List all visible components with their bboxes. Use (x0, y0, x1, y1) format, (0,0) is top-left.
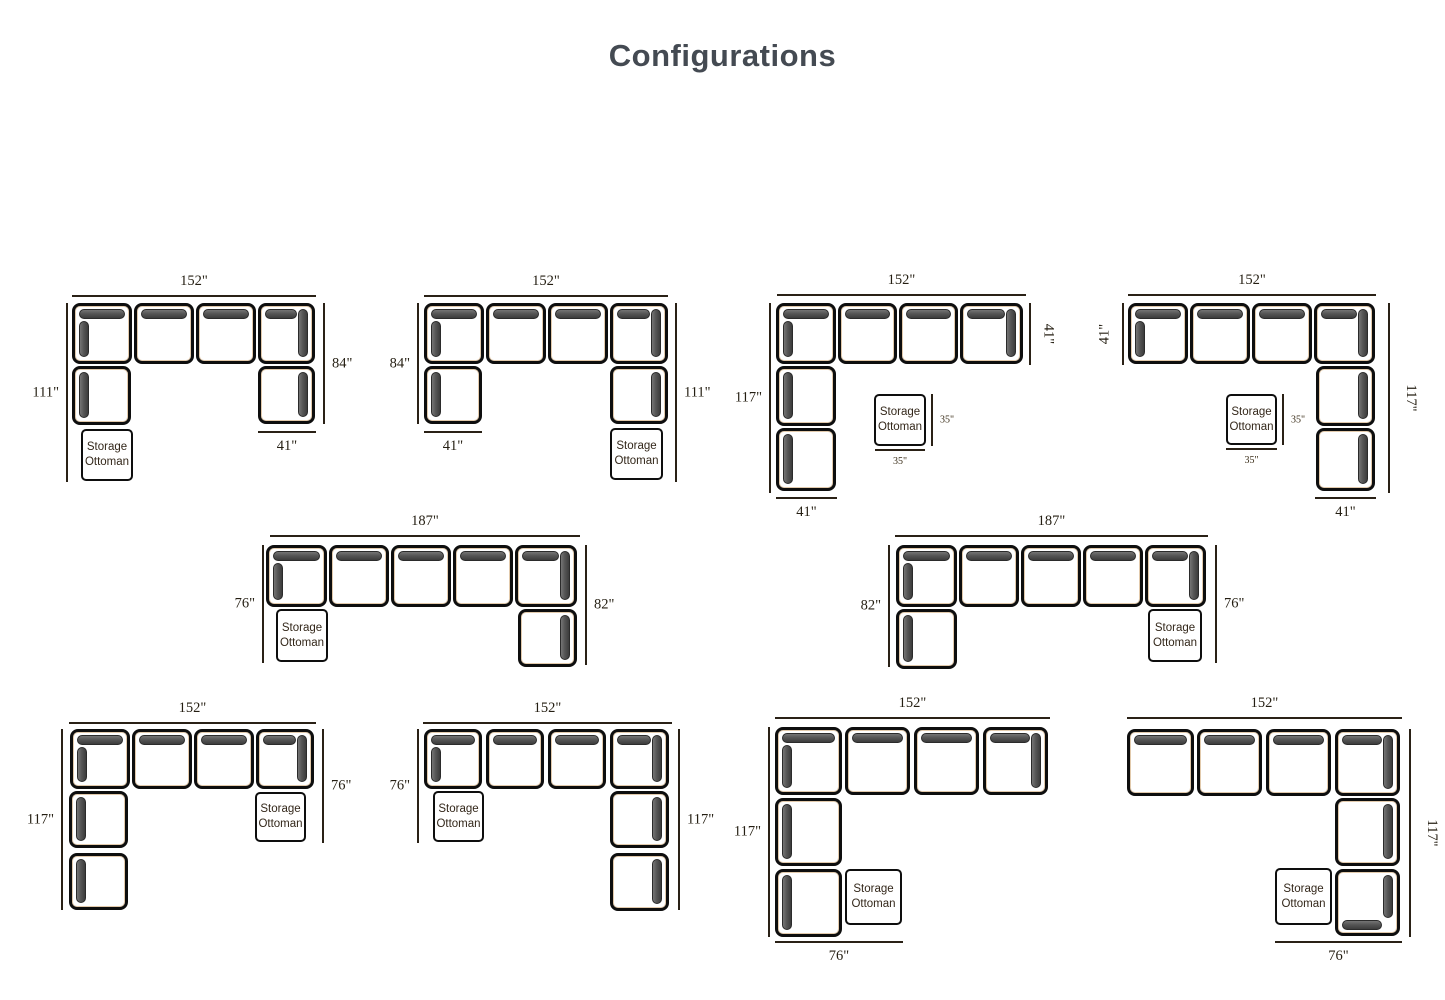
seat-module (1335, 729, 1400, 796)
back-cushion-bar (1273, 735, 1324, 745)
right-arm-bar (1383, 804, 1393, 859)
storage-ottoman-label-line1: Storage (1283, 882, 1323, 897)
seat-module (1266, 729, 1331, 796)
right-arm-bar (1383, 875, 1393, 918)
storage-ottoman-label-line2: Ottoman (1281, 897, 1325, 912)
dimension-line (1127, 717, 1402, 719)
bottom-arm-bar (1342, 920, 1382, 930)
dimension-line (1275, 941, 1402, 943)
back-cushion-bar (1204, 735, 1255, 745)
back-cushion-bar (1342, 735, 1382, 745)
seat-module (1197, 729, 1262, 796)
dimension-label: 117" (1423, 819, 1440, 846)
back-cushion-bar (1134, 735, 1187, 745)
seat-module (1335, 869, 1400, 936)
seat-module (1127, 729, 1194, 796)
storage-ottoman: StorageOttoman (1275, 868, 1332, 925)
right-arm-bar (1383, 735, 1393, 789)
dimension-line (1409, 729, 1411, 937)
dimension-label: 152" (1251, 695, 1279, 712)
configurations-page: Configurations StorageOttoman152"111"84"… (0, 0, 1445, 1000)
dimension-label: 76" (1328, 948, 1348, 965)
config-10-l-shape-right-ottoman-beside-chaise: StorageOttoman152"117"76" (0, 0, 1445, 1000)
seat-module (1335, 798, 1400, 866)
